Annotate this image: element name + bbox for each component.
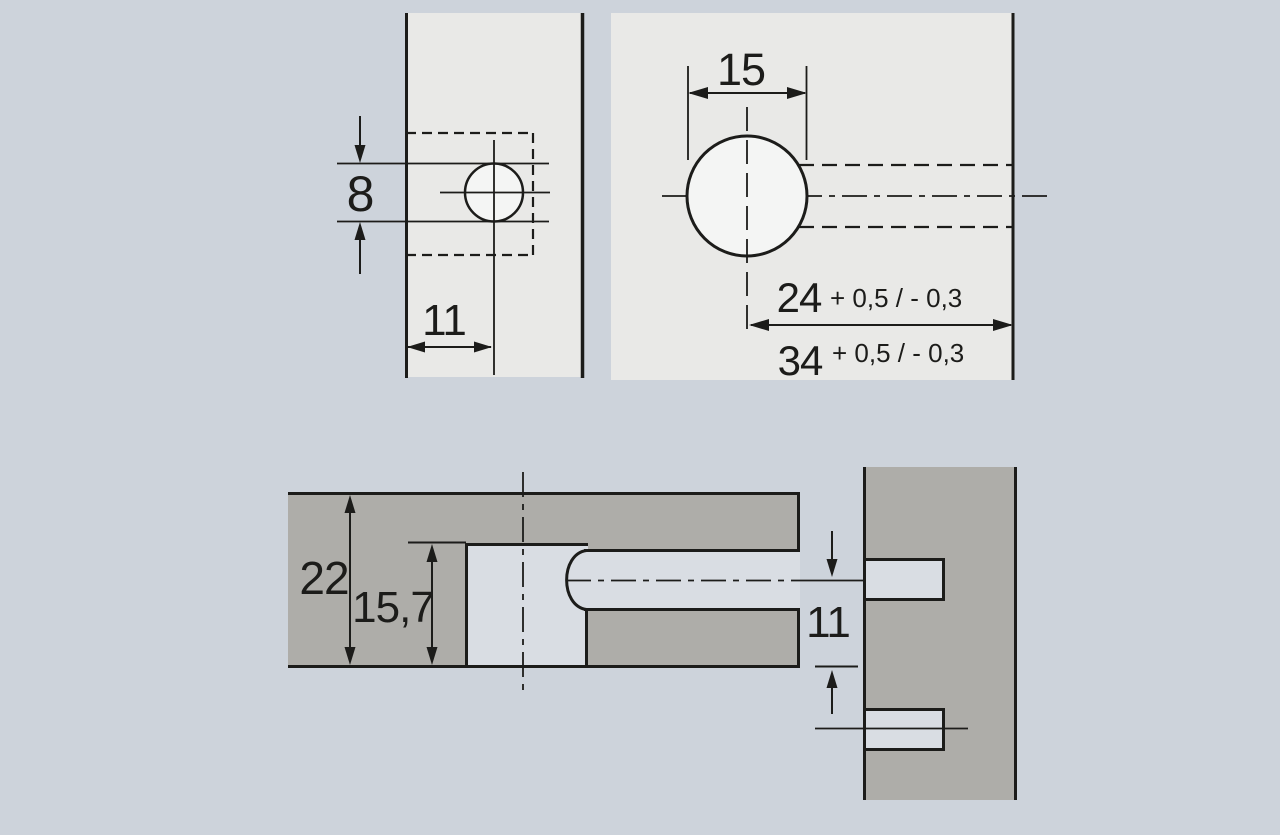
dim-22-label: 22: [299, 552, 348, 604]
dim-15-label: 15: [717, 44, 765, 95]
dim-34-label: 34: [778, 337, 823, 384]
dim-24-tolerance: + 0,5 / - 0,3: [830, 283, 962, 313]
technical-drawing: 8 11 15: [0, 0, 1280, 835]
dowel-hole-top: [865, 560, 944, 600]
dowel-hole-bottom: [865, 710, 944, 750]
dim-11-label: 11: [422, 296, 466, 345]
dim-24-label: 24: [777, 274, 822, 321]
dim-34-tolerance: + 0,5 / - 0,3: [832, 338, 964, 368]
face-view: 15 24 + 0,5 / - 0,3 34 + 0,5 / - 0,3: [611, 13, 1047, 384]
dim-8-label: 8: [347, 166, 374, 222]
dim-15-7-label: 15,7: [352, 583, 434, 632]
dim-11-section-label: 11: [806, 598, 850, 647]
